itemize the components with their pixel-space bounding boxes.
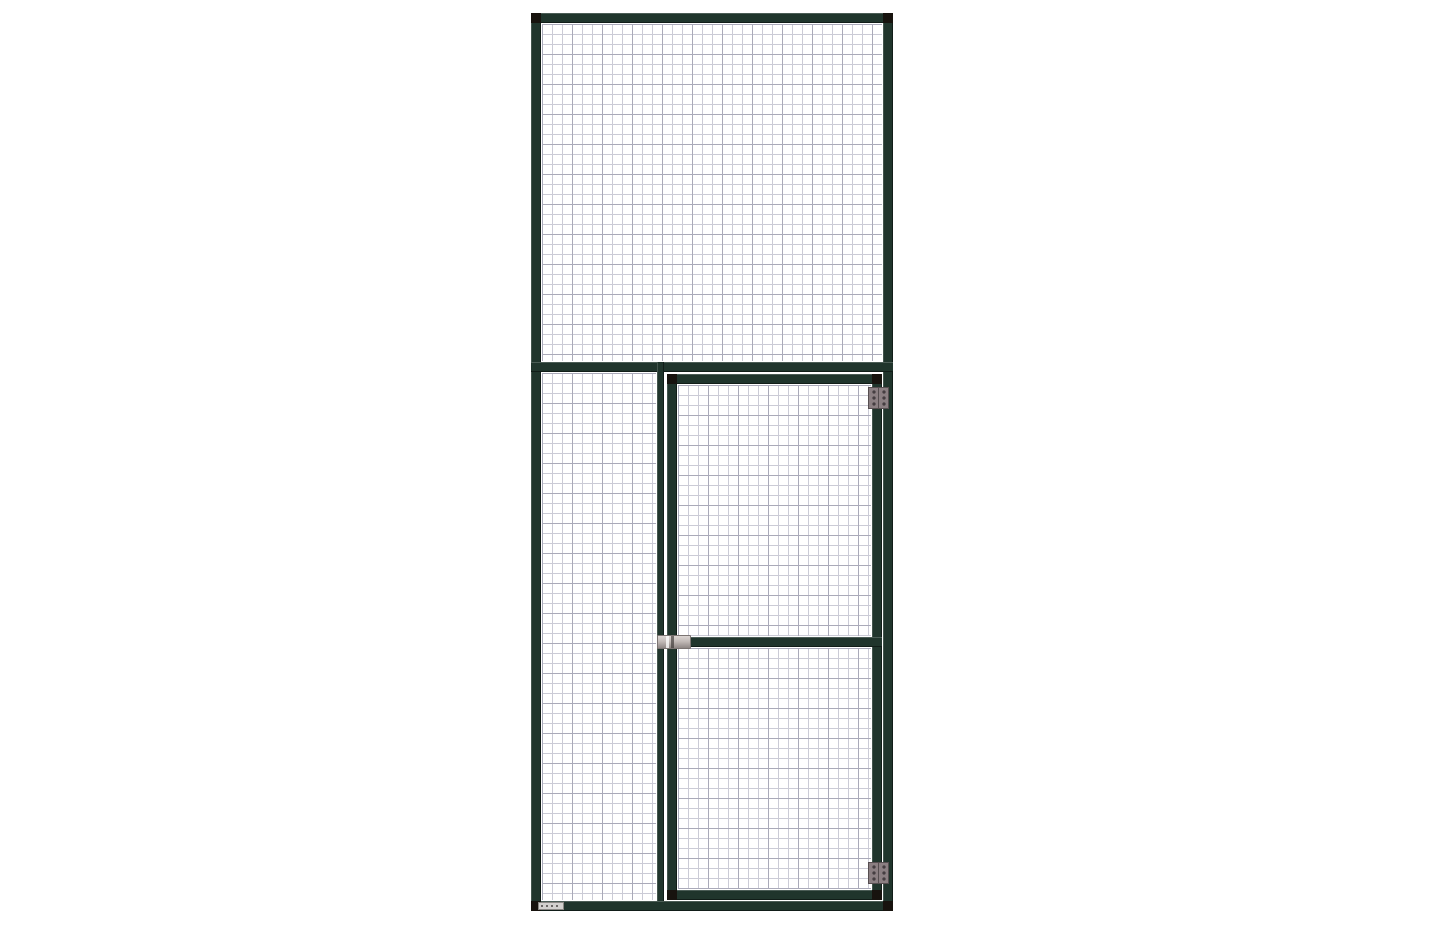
top-mesh-section <box>542 24 882 361</box>
door-corner-cap-bottom-right <box>872 890 882 900</box>
door-top-rail <box>667 374 882 384</box>
door-corner-cap-top-left <box>667 374 677 384</box>
door-corner-cap-bottom-left <box>667 890 677 900</box>
frame-corner-cap-bottom-right <box>883 901 893 911</box>
door-corner-cap-top-right <box>872 374 882 384</box>
frame-top-rail <box>531 13 893 23</box>
frame-corner-cap-top-left <box>531 13 541 23</box>
frame-corner-cap-top-right <box>883 13 893 23</box>
frame-bottom-rail <box>531 901 893 911</box>
frame-mid-rail <box>531 362 893 372</box>
frame-left-stile <box>531 13 541 911</box>
divider-post <box>657 362 664 901</box>
product-image-canvas <box>0 0 1445 927</box>
door-upper-mesh-section <box>678 385 871 636</box>
lower-left-mesh-section <box>542 373 656 900</box>
mesh-panel <box>531 13 893 911</box>
door-lower-mesh-section <box>678 648 871 889</box>
door-hinge-top <box>868 387 889 409</box>
mesh-door <box>667 374 882 900</box>
door-latch <box>657 635 691 649</box>
frame-right-stile <box>883 13 893 911</box>
door-bottom-rail <box>667 890 882 900</box>
door-hinge-bottom <box>868 862 889 884</box>
product-label-sticker <box>538 902 564 910</box>
door-mid-rail <box>667 637 882 647</box>
